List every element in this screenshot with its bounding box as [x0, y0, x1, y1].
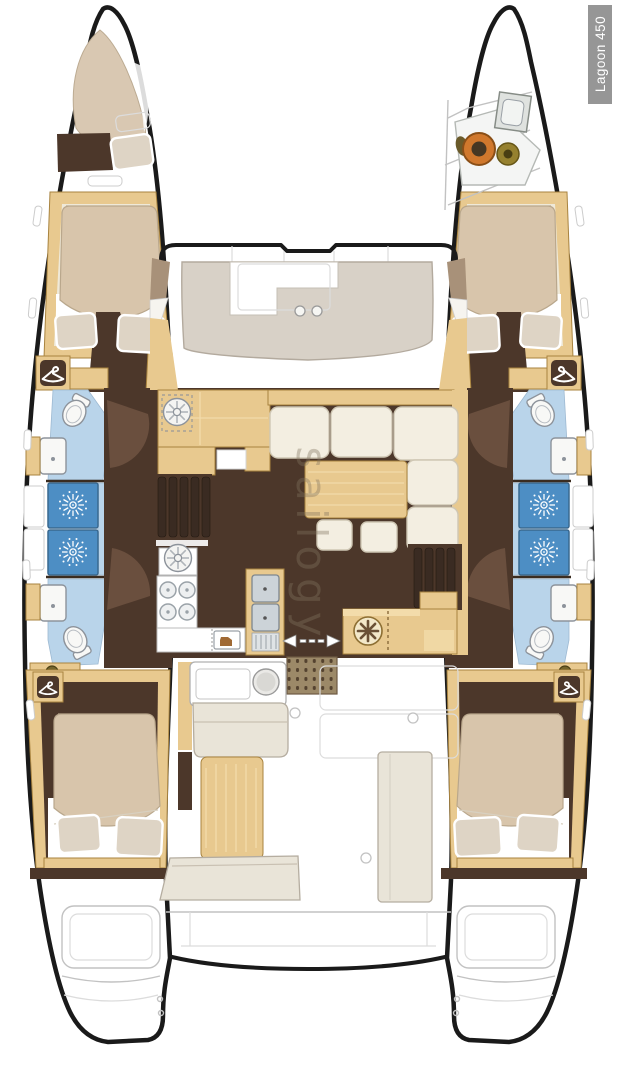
helm-seat-module: [378, 752, 432, 902]
cupholder: [295, 306, 305, 316]
aft-cockpit: [160, 657, 458, 902]
cupholder: [312, 306, 322, 316]
sofa-cushion: [331, 407, 392, 457]
floor-plan-drawing: sailogy: [0, 0, 617, 1080]
model-badge: Lagoon 450: [588, 5, 612, 104]
aft-burner-icon: [354, 617, 382, 645]
cockpit-wetbar: [190, 662, 286, 706]
island-sink-unit: [246, 569, 284, 655]
sofa-cushion: [394, 407, 458, 460]
coachroof-front: [161, 245, 456, 260]
sideboard: [268, 390, 454, 405]
galley-sink-icon: [164, 399, 191, 426]
transom-beam: [172, 957, 445, 969]
port-stairs: [158, 477, 210, 537]
sofa-cushion: [407, 460, 458, 505]
forward-cockpit: [150, 246, 467, 390]
port-bow-berth: [57, 30, 154, 186]
aft-bench: [160, 856, 300, 900]
stool-cushion: [361, 522, 397, 552]
cockpit-table: [201, 757, 263, 859]
floor-plan-page: sailogy: [0, 0, 617, 1080]
round-sink-icon: [165, 545, 192, 572]
watermark-text: sailogy: [287, 446, 336, 643]
model-badge-text: Lagoon 450: [593, 16, 608, 92]
